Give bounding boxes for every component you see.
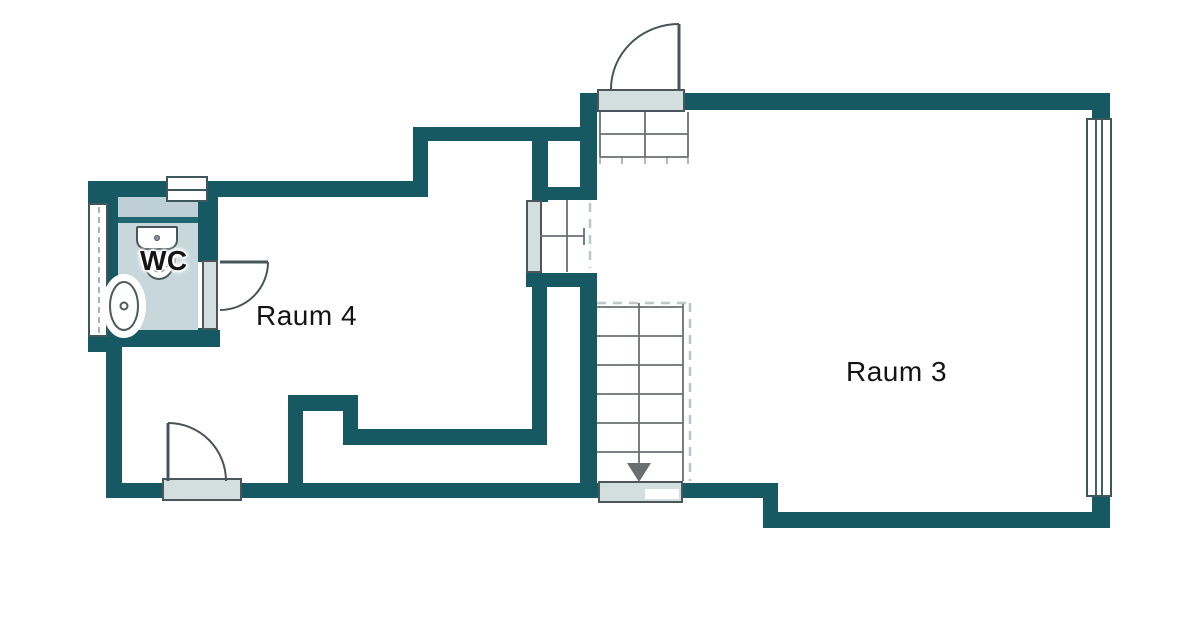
wc-label: WC bbox=[140, 247, 188, 275]
stair-landing bbox=[540, 200, 590, 272]
stair-direction-arrow bbox=[627, 463, 651, 482]
floor-plan: WC Raum 4 Raum 3 bbox=[0, 0, 1200, 623]
room3-label: Raum 3 bbox=[846, 358, 947, 386]
room4-label: Raum 4 bbox=[256, 302, 357, 330]
entry-steps bbox=[600, 112, 688, 164]
room4-door bbox=[168, 423, 226, 481]
floor-plan-overlay bbox=[0, 0, 1200, 623]
main-staircase-down bbox=[597, 303, 690, 482]
entrance-door bbox=[611, 24, 679, 89]
sink-drain bbox=[155, 236, 160, 241]
toilet bbox=[104, 276, 144, 336]
